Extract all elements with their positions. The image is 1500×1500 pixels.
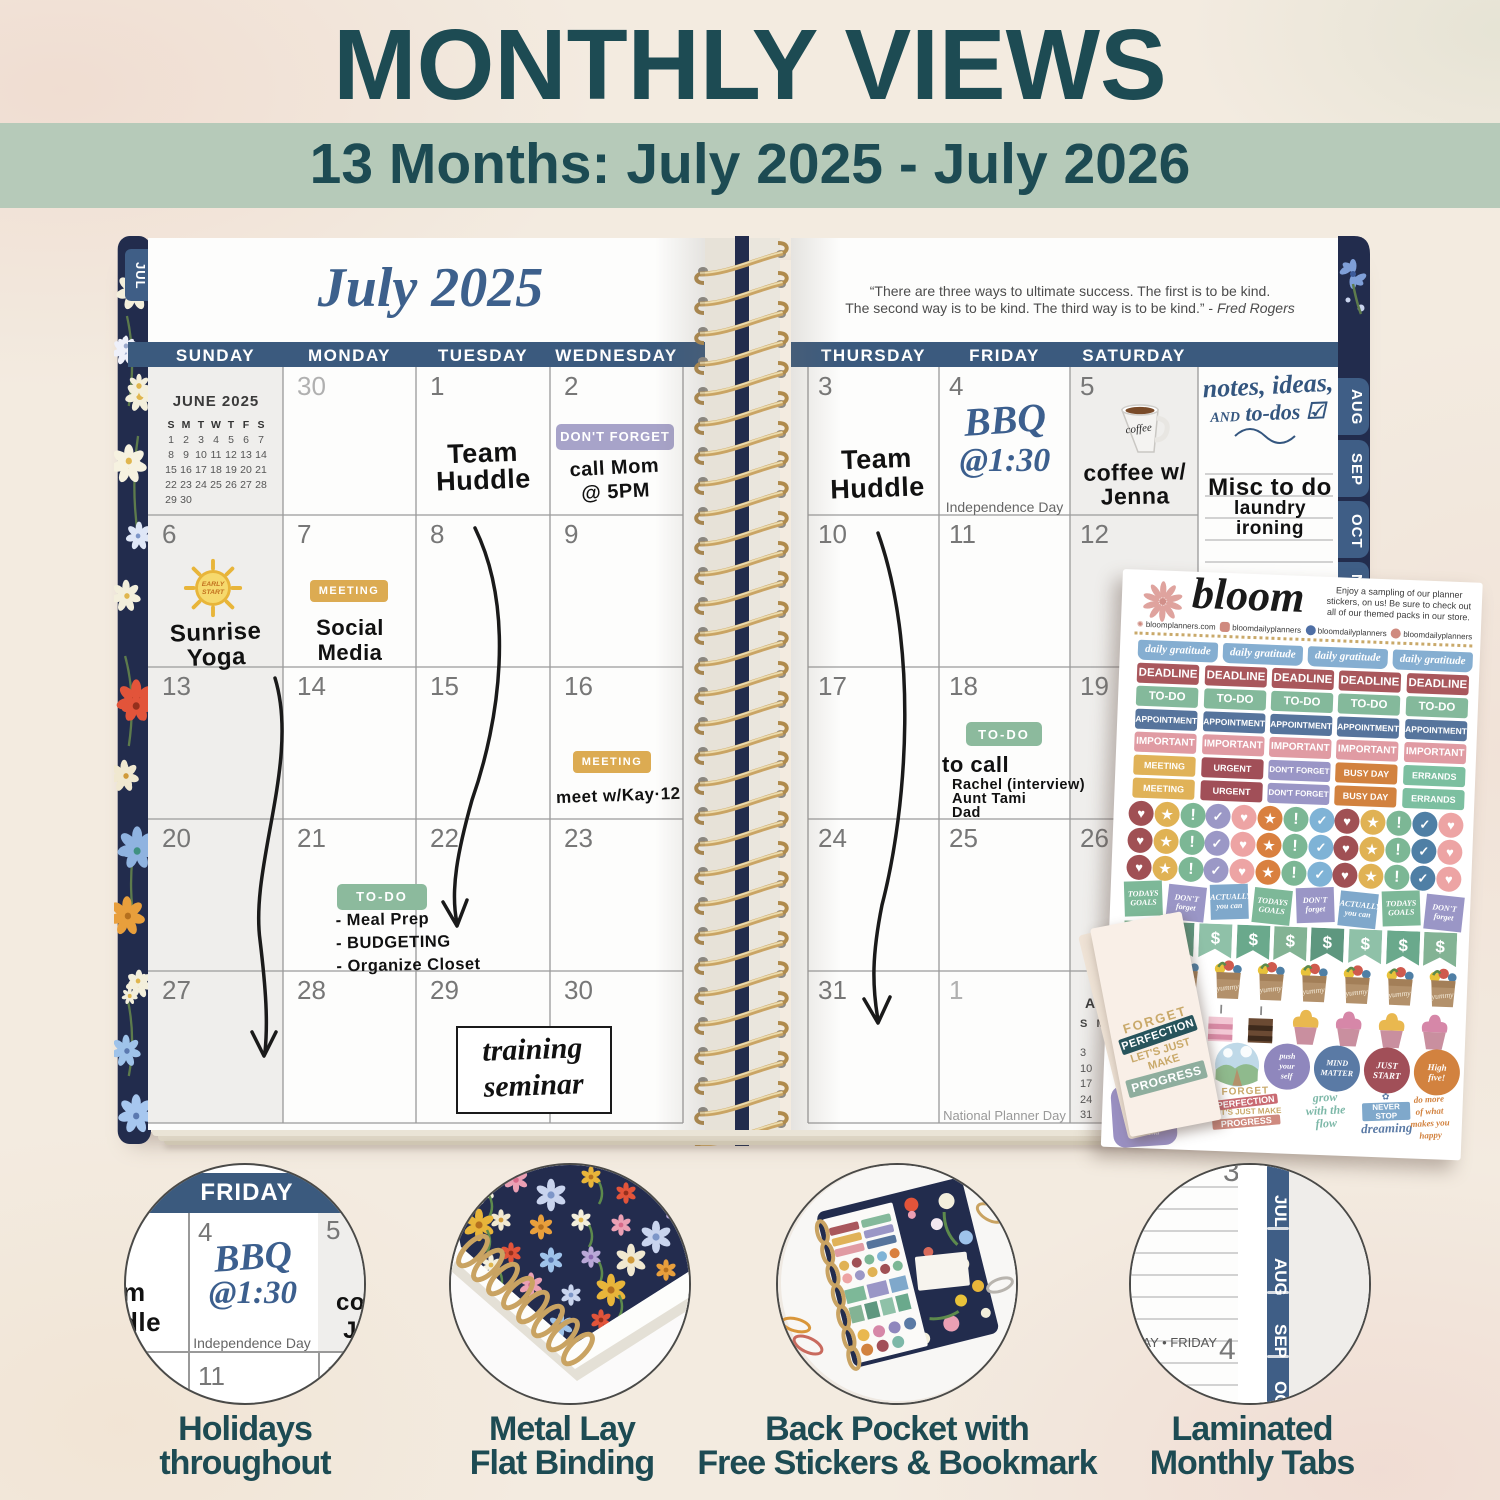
svg-text:START: START — [202, 589, 225, 596]
svg-text:EARLY: EARLY — [202, 581, 226, 588]
svg-text:$: $ — [1398, 936, 1409, 955]
svg-text:$: $ — [1248, 930, 1259, 949]
svg-text:DAY • FRIDAY: DAY • FRIDAY — [1133, 1335, 1217, 1350]
svg-text:$: $ — [1322, 933, 1333, 952]
svg-text:$: $ — [1285, 932, 1296, 951]
svg-text:4: 4 — [1219, 1333, 1236, 1366]
svg-text:$: $ — [1360, 934, 1371, 953]
svg-text:3: 3 — [1223, 1165, 1240, 1188]
svg-text:$: $ — [1210, 929, 1221, 948]
svg-text:$: $ — [1435, 937, 1446, 956]
